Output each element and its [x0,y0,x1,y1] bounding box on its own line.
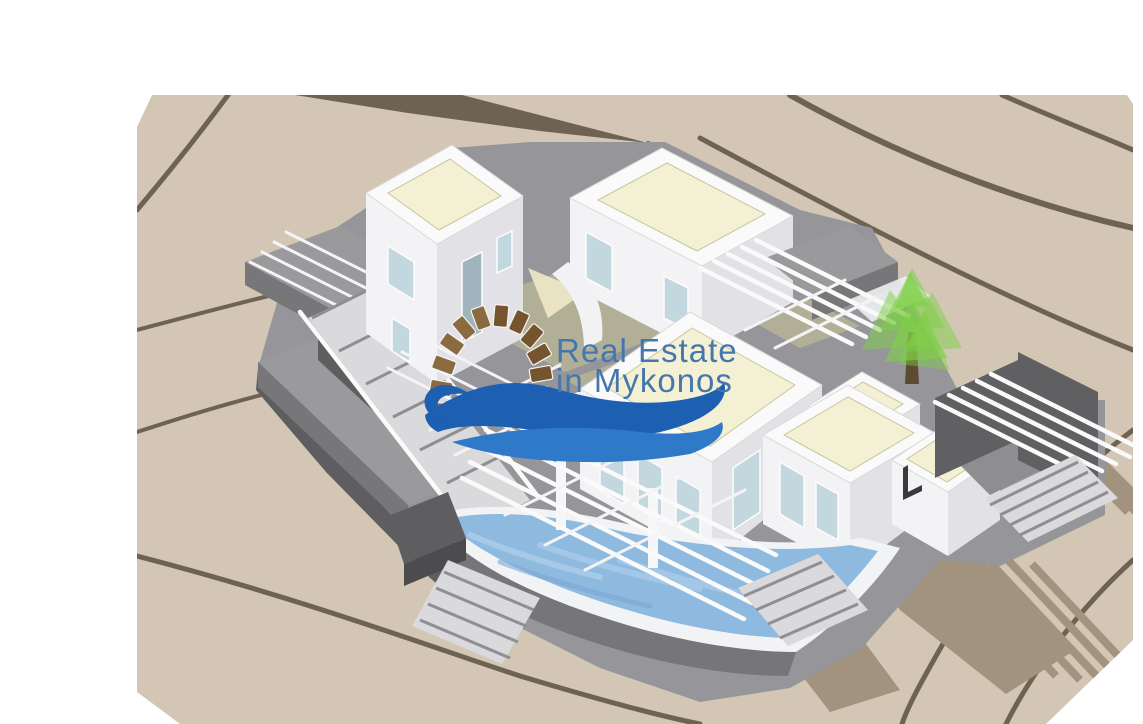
window [497,231,512,273]
villa-upper-left [366,145,523,384]
watermark-line2: in Mykonos [556,362,733,399]
rendering-canvas: Real Estate in Mykonos [0,0,1143,724]
villa-3d-rendering: Real Estate in Mykonos [0,0,1143,724]
